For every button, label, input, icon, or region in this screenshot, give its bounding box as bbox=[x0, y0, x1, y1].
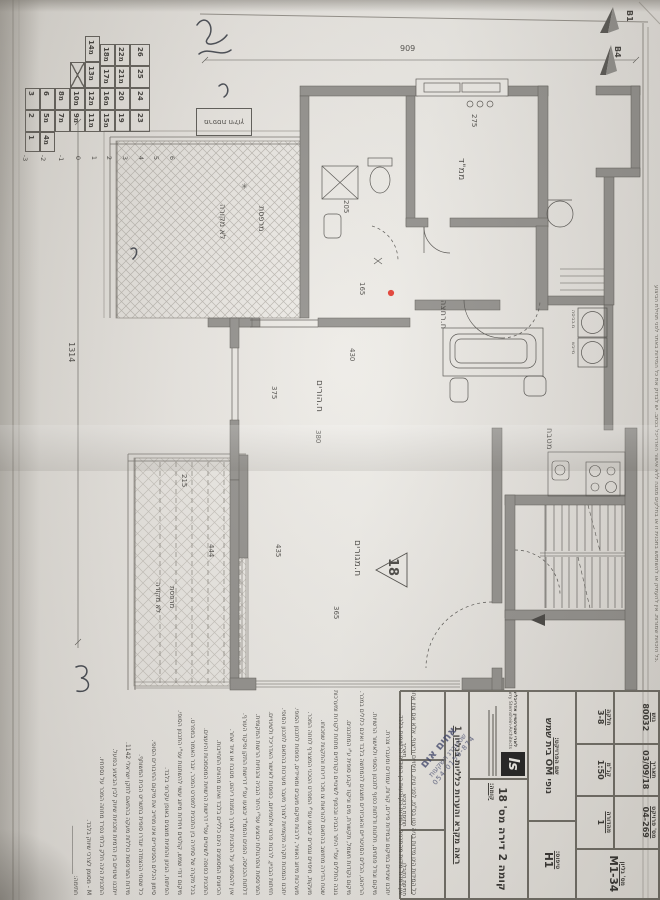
floor-number: 4 bbox=[129, 156, 145, 160]
notes-line: גובה החללים עפ"י היתר הבניה ובכפוף לשינו… bbox=[329, 690, 342, 895]
room-label-mamad: ממ"ד bbox=[456, 158, 466, 180]
key-plan-cell: 23 bbox=[130, 110, 150, 132]
key-plan-cell: מ9 bbox=[70, 110, 85, 132]
drain-symbol: ✳ bbox=[241, 182, 248, 191]
floor-number: -1 bbox=[49, 155, 65, 161]
kitchen-fixtures bbox=[548, 452, 625, 496]
notes-line: M - מסומן לצרכי שיווק בלבד. bbox=[82, 690, 95, 895]
key-plan-cell: מ13 bbox=[85, 62, 100, 88]
field-gush: גוש 80032 bbox=[614, 691, 659, 744]
dim-365: 365 bbox=[332, 606, 340, 619]
notes-line: אין להסתמך על התכנית לצורך הזמנת ריהוט, … bbox=[225, 690, 238, 895]
notes-line: התכנית הינה חלק בלתי נפרד מחוזה המכר על … bbox=[95, 690, 108, 895]
floor-number: -3 bbox=[13, 155, 29, 161]
notes-line: הריהוט, הכלים הסניטריים והאביזרים מוצגים… bbox=[355, 690, 368, 895]
floor-plan-photo: ✳ 3 2 1 6 מ5 מ4 מ8 מ7 מ10 מ9 מ14 מ13 מ bbox=[0, 0, 660, 900]
dim-444: 444 bbox=[207, 544, 215, 557]
notes-line: יתכנו הנמכות תקרה מקומיות לצורך מעבר מער… bbox=[277, 690, 290, 895]
notes-line: מידות המרפסות כוללות מעקה בהתאם לתקן ישר… bbox=[121, 690, 134, 895]
key-plan-floor-axis: -3-2-10123456 bbox=[18, 150, 170, 166]
dryer-label: מייבש bbox=[570, 342, 576, 354]
notes-line: מיקום וגודל פתחים, חלונות ודלתות כפוף לת… bbox=[368, 690, 381, 895]
notes-line: התכנית כפופה לשינויים עפ"י דרישות הרשויו… bbox=[199, 690, 212, 895]
notes-line: הפיתוח, הגינון והחניות מוצגים באופן עקרו… bbox=[160, 690, 173, 895]
field-edition: מהדורה 1 bbox=[576, 796, 614, 849]
apartment-number: 18 bbox=[385, 558, 400, 576]
washer-label: מ.כביסה bbox=[570, 310, 576, 328]
dim-909: 909 bbox=[400, 44, 415, 53]
notes-line: סימון הכלים הסניטריים אינו מחייב את מיקו… bbox=[147, 690, 160, 895]
key-plan-cell: 19 bbox=[115, 110, 130, 132]
notes-line: המרפסות והפרגולות יבוצעו עפ"י היתר הבניה… bbox=[251, 690, 264, 895]
floor-number: 6 bbox=[160, 156, 176, 160]
key-plan-crossed-cell bbox=[70, 62, 85, 88]
floor-number: -2 bbox=[31, 155, 47, 161]
sheet-edge-note: כל הזכויות שמורות. אין להעתיק או להשתמש … bbox=[653, 285, 659, 662]
key-plan-cell: מ8 bbox=[55, 88, 70, 110]
dim-215: 215 bbox=[180, 474, 188, 487]
general-notes-block: כל המידות הינן מידות בניה נטו בס"מ, לפני… bbox=[62, 690, 420, 895]
key-plan-cell: מ15 bbox=[100, 110, 115, 132]
key-plan-cell: 25 bbox=[130, 66, 150, 88]
floor-number: 5 bbox=[144, 156, 160, 160]
key-plan-cell: מ17 bbox=[100, 66, 115, 88]
notes-line: מעקות, חיפויים וגמרים יבוצעו עפ"י המפרט … bbox=[303, 690, 316, 895]
dim-205: 205 bbox=[342, 200, 350, 213]
notes-line: מערכות מיזוג האוויר, לרבות מיקום מעבים ו… bbox=[290, 690, 303, 895]
key-plan-cell: מ16 bbox=[100, 88, 115, 110]
room-label-master: ח.הורים bbox=[314, 380, 324, 412]
notes-line: חזיתות הבניין, לרבות פרטי אלומיניום, כפו… bbox=[264, 690, 277, 895]
field-project-no: מס' פרויקט 04-269 bbox=[614, 796, 659, 849]
notes-line: מיקום נקודות חשמל, תקשורת, מים וניקוז יק… bbox=[342, 690, 355, 895]
notes-line: דלתות הכניסה, הפנים והממ"ד יבוצעו עפ"י ד… bbox=[238, 690, 251, 895]
balcony2-label-2: לא מקורה bbox=[154, 582, 162, 613]
floor-number: 2 bbox=[97, 156, 113, 160]
room-label-living: ח.מגורים bbox=[352, 540, 362, 576]
bathroom-1-fixtures bbox=[322, 158, 398, 264]
notes-line: שטח הדירה מחושב בהתאם להוראות צו מכר דיר… bbox=[316, 690, 329, 895]
north-arrow-icons bbox=[600, 7, 619, 75]
room-label-bath: ח.רחצה bbox=[439, 300, 448, 329]
field-scale: קנ"מ 1:50 bbox=[576, 744, 614, 797]
balcony1-label-1: מרפסת bbox=[257, 206, 266, 231]
key-plan-cell: 26 bbox=[130, 44, 150, 66]
floor-number: 0 bbox=[66, 156, 82, 160]
floor-number: 1 bbox=[82, 156, 98, 160]
key-plan-cell: מ11 bbox=[85, 110, 100, 132]
key-plan-cell: 3 bbox=[25, 88, 40, 110]
notes-line: חתימה: ________________ bbox=[69, 690, 82, 895]
dim-165: 165 bbox=[358, 282, 366, 295]
red-dot-marker bbox=[388, 290, 394, 296]
field-date: תאריך 03/09/18 bbox=[614, 744, 659, 797]
dim-435: 435 bbox=[274, 544, 282, 557]
key-plan-cell: מ14 bbox=[85, 36, 100, 62]
north-label-b4: B4 bbox=[613, 46, 622, 58]
dim-1314: 1314 bbox=[67, 342, 76, 362]
notes-line: מיקום דודי שמש, קולטים ויחידות מיזוג עשו… bbox=[173, 690, 186, 895]
field-helka: חלקה 3-8 bbox=[576, 691, 614, 744]
key-plan-cell: 1 bbox=[25, 132, 40, 152]
service-fixtures bbox=[547, 200, 607, 367]
dim-375: 375 bbox=[270, 386, 278, 399]
notes-line: בכל מקרה של סתירה בין התכנית למפרט המכר,… bbox=[186, 690, 199, 895]
key-plan-cell: מ10 bbox=[70, 88, 85, 110]
notes-line: ייתכנו שינויים בין הדמיות ותכניות שיווק … bbox=[108, 690, 121, 895]
north-label-b1: B1 bbox=[625, 10, 634, 22]
floor-number: 3 bbox=[113, 156, 129, 160]
balcony1-label-2: לא מקורה bbox=[218, 204, 227, 239]
key-plan-cell: מ4 bbox=[40, 132, 55, 152]
dim-430: 430 bbox=[348, 348, 356, 361]
key-plan-cell: מ22 bbox=[115, 44, 130, 66]
balcony2-label-1: מרפסת bbox=[168, 586, 176, 608]
key-plan-cell: מ21 bbox=[115, 66, 130, 88]
key-plan-cell: מ12 bbox=[85, 88, 100, 110]
notes-line: יתכנו שינויים במיקום ובמידות פירים, קורו… bbox=[381, 690, 394, 895]
key-plan-cell: 20 bbox=[115, 88, 130, 110]
dim-380: 380 bbox=[314, 430, 322, 443]
dim-275: 275 bbox=[470, 114, 478, 127]
key-plan-cell: 6 bbox=[40, 88, 55, 110]
room-label-kitchen: מטבח bbox=[545, 428, 554, 450]
bathroom-2-fixtures bbox=[443, 328, 546, 402]
key-plan-cell: מ5 bbox=[40, 110, 55, 132]
field-sheet-no: מס' גליון M1-34 bbox=[576, 849, 659, 900]
stairs bbox=[531, 505, 625, 626]
key-plan-cell: מ18 bbox=[100, 44, 115, 66]
notes-line: הכיוונים המסומנים הינם כלליים בלבד ואינם… bbox=[212, 690, 225, 895]
field-type: טיפוס: H1 bbox=[528, 821, 576, 899]
rescue-balcony-label: מרפסת חילוץ bbox=[196, 108, 252, 136]
key-plan-cell: 2 bbox=[25, 110, 40, 132]
key-plan-cell: מ7 bbox=[55, 110, 70, 132]
key-plan-cell: 24 bbox=[130, 88, 150, 110]
notes-line: כל שטחי ההצמדה יוגדרו סופית בתשריט הבית … bbox=[134, 690, 147, 895]
